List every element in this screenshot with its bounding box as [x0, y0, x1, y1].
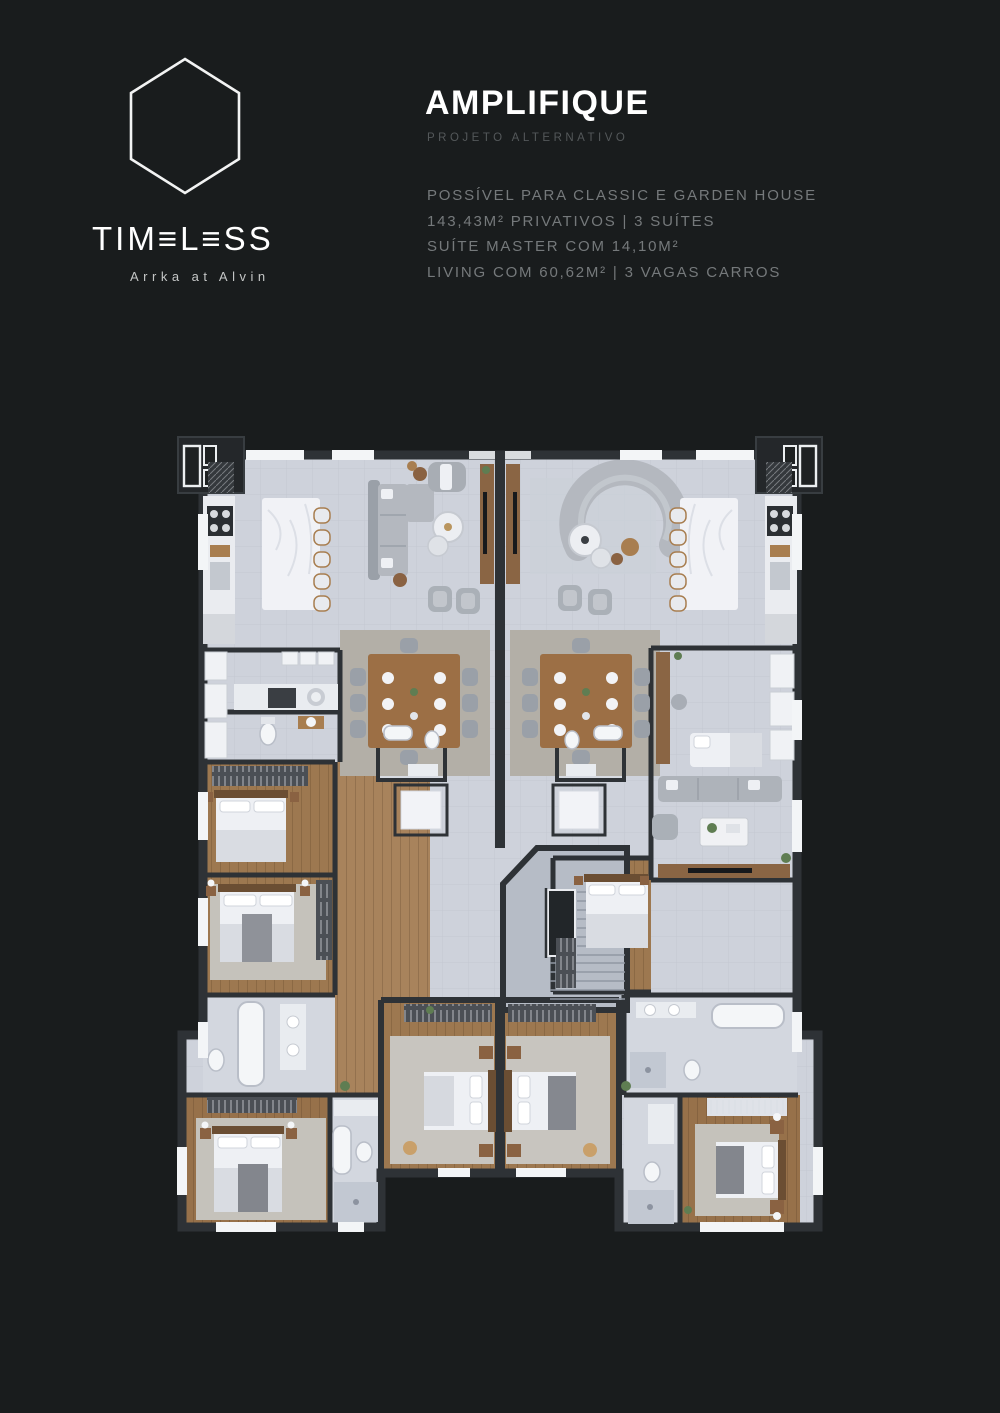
suite-2-left: [206, 880, 332, 981]
spec-line-1: POSSÍVEL PARA CLASSIC E GARDEN HOUSE: [427, 183, 817, 209]
bathtub-left: [238, 1002, 264, 1086]
tv-right: [513, 492, 517, 554]
hexagon-logo-icon: [128, 56, 242, 196]
tv-left: [483, 492, 487, 554]
spec-line-2: 143,43M² PRIVATIVOS | 3 SUÍTES: [427, 209, 817, 235]
floorplan-render: [170, 433, 830, 1237]
sink-left: [210, 562, 230, 590]
desk-right: [656, 652, 670, 764]
page-subtitle: PROJETO ALTERNATIVO: [427, 132, 628, 144]
cooktop-left: [207, 506, 233, 536]
entry-door-right: [505, 451, 531, 459]
tv-lounge: [688, 868, 752, 873]
entry-door-left: [469, 451, 495, 459]
sink-right: [770, 562, 790, 590]
lounge-coffee-table: [700, 818, 748, 846]
brand-tagline: Arrka at Alvin: [130, 269, 270, 284]
brand-wordmark: TIM≡L≡SS: [92, 220, 352, 258]
spec-line-3: SUÍTE MASTER COM 14,10M²: [427, 234, 817, 260]
dining-right: [522, 638, 650, 765]
bathtub-right: [712, 1004, 784, 1028]
spec-lines: POSSÍVEL PARA CLASSIC E GARDEN HOUSE 143…: [427, 183, 817, 285]
page-title: AMPLIFIQUE: [425, 84, 650, 123]
cooktop-right: [767, 506, 793, 536]
dining-table-left: [368, 654, 460, 748]
spec-line-4: LIVING COM 60,62M² | 3 VAGAS CARROS: [427, 260, 817, 286]
lavabo-toilet: [260, 723, 276, 745]
dining-left: [350, 638, 478, 765]
